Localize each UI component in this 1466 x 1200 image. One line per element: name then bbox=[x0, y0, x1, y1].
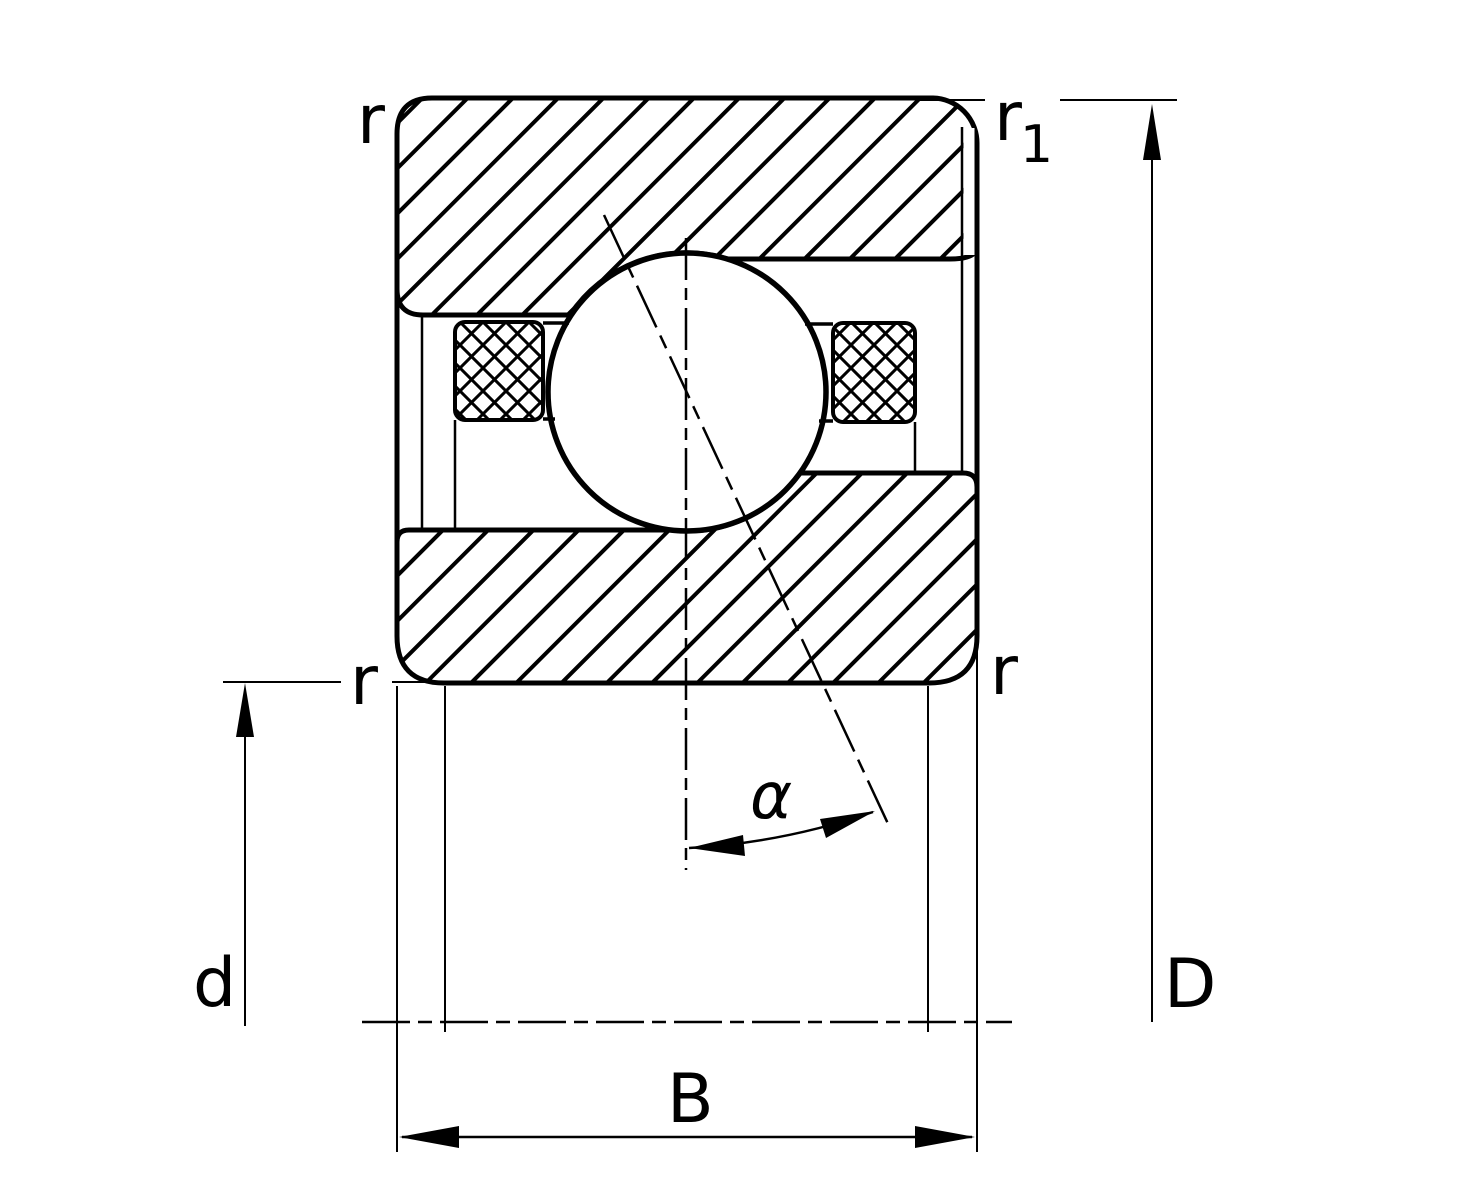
cage-section-right bbox=[833, 323, 915, 422]
contact-angle-label: α bbox=[750, 760, 792, 834]
chamfer-mid-right-label: r bbox=[990, 632, 1018, 711]
chamfer-top-right-label: r bbox=[994, 78, 1022, 157]
chamfer-top-right-subscript: 1 bbox=[1020, 115, 1053, 175]
drawing-canvas: r r 1 r r d D B α bbox=[0, 0, 1466, 1200]
chamfer-top-left-label: r bbox=[357, 81, 385, 160]
chamfer-mid-left-label: r bbox=[350, 642, 378, 721]
bearing-cross-section-drawing: r r 1 r r d D B α bbox=[0, 0, 1466, 1200]
bore-diameter-label: d bbox=[193, 944, 236, 1023]
outer-diameter-label: D bbox=[1164, 945, 1216, 1024]
cage-section-left bbox=[455, 322, 543, 420]
width-label: B bbox=[667, 1060, 714, 1139]
outer-ring-chamfer-land bbox=[964, 128, 975, 255]
